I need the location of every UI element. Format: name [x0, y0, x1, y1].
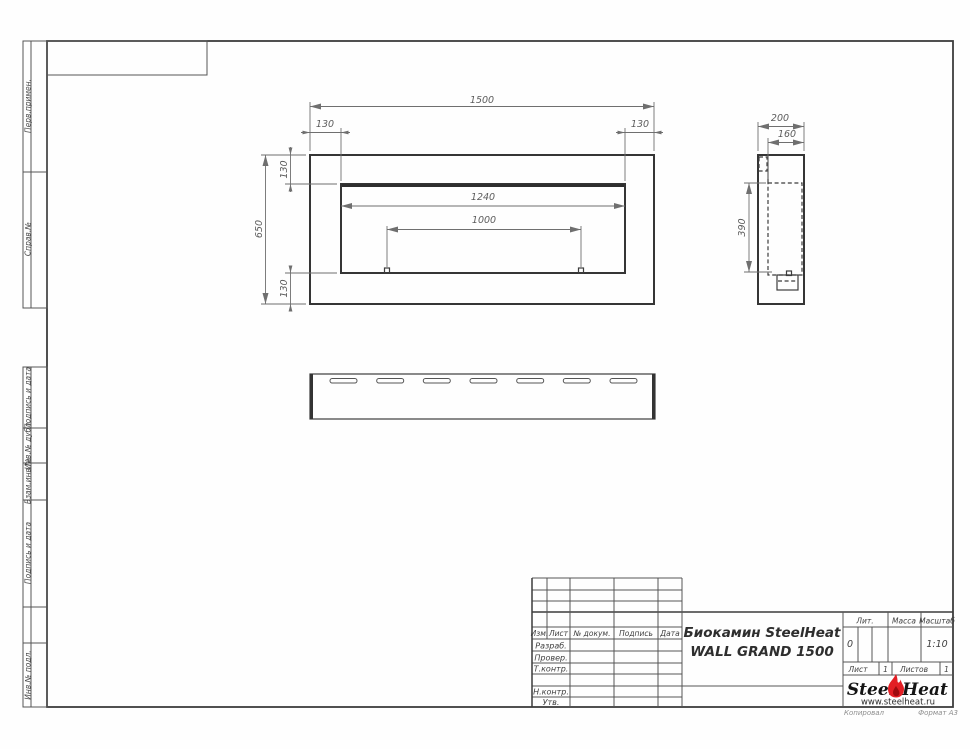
tb-scale-value: 1:10	[926, 639, 947, 650]
side-view-dimensions: 200 160 390	[737, 113, 804, 272]
logo-url: www.steelheat.ru	[861, 698, 935, 708]
drawing-sheet: Перв.примен. Справ.№ Подпись и дата Инв.…	[0, 0, 970, 749]
vent-slot	[563, 379, 590, 384]
front-view-dimensions: 1500 130 130 650 130 130 1240	[254, 95, 663, 312]
tb-col-list: Лист	[548, 629, 569, 638]
tb-col-dokum: № докум.	[573, 629, 611, 638]
margin-label-podpis-data-2: Подпись и дата	[24, 522, 33, 585]
tb-row-utv: Утв.	[543, 698, 560, 707]
vent-slot	[610, 379, 637, 384]
footer-format: Формат А3	[918, 709, 958, 717]
document-title-line1: Биокамин SteelHeat	[684, 625, 841, 641]
dim-front-left: 130	[316, 119, 334, 130]
dim-side-inner: 160	[778, 129, 796, 140]
side-view	[758, 155, 804, 304]
vent-slot	[470, 379, 497, 384]
vent-slot	[517, 379, 544, 384]
mount-bracket	[759, 157, 767, 171]
title-block: Изм. Лист № докум. Подпись Дата Разраб. …	[531, 578, 958, 717]
tb-lit-label: Лит.	[855, 617, 873, 626]
dim-front-width: 1500	[470, 95, 494, 106]
vent-slot	[423, 379, 450, 384]
technical-drawing-svg: Перв.примен. Справ.№ Подпись и дата Инв.…	[0, 0, 970, 749]
tb-row-nkontr: Н.контр.	[533, 688, 569, 697]
tb-sheet-value: 1	[883, 665, 888, 674]
left-margin-top-blocks: Перв.примен. Справ.№	[23, 41, 47, 308]
tb-sheets-value: 1	[944, 665, 949, 674]
dim-side-opening-height: 390	[737, 218, 748, 236]
top-left-designation-box	[47, 41, 207, 75]
flame-icon	[888, 674, 904, 698]
tb-col-podpis: Подпись	[619, 629, 653, 638]
bottom-view	[310, 374, 655, 419]
vent-slot	[330, 379, 357, 384]
tb-lit-value: 0	[847, 639, 853, 650]
dim-front-bottom: 130	[279, 279, 290, 297]
tb-col-data: Дата	[659, 629, 680, 638]
dim-front-top: 130	[279, 160, 290, 178]
margin-label-sprav-no: Справ.№	[24, 222, 33, 256]
footer-kopiroval: Копировал	[844, 709, 885, 717]
steelheat-logo: Steel Heat www.steelheat.ru	[847, 674, 948, 708]
tb-sheets-label: Листов	[899, 665, 928, 674]
margin-label-podpis-data-1: Подпись и дата	[24, 367, 33, 430]
margin-label-perv-primen: Перв.примен.	[24, 79, 33, 133]
vent-slot	[377, 379, 404, 384]
dim-opening-width: 1240	[471, 192, 495, 203]
tb-scale-label: Масштаб	[919, 617, 955, 626]
tb-row-prover: Провер.	[534, 654, 567, 663]
margin-label-inv-podl: Инв.№ подл.	[24, 650, 33, 699]
tb-row-razrab: Разраб.	[535, 642, 566, 651]
left-margin-bottom-blocks: Подпись и дата Инв.№ дубл. Взам.инв.№ По…	[23, 367, 47, 707]
dim-front-right: 130	[631, 119, 649, 130]
document-title-line2: WALL GRAND 1500	[690, 644, 833, 660]
tb-sheet-label: Лист	[847, 665, 868, 674]
dim-front-height: 650	[254, 220, 265, 238]
tb-row-tkontr: Т.контр.	[534, 665, 569, 674]
dim-side-depth: 200	[771, 113, 789, 124]
margin-label-vzam-inv: Взам.инв.№	[24, 458, 33, 504]
dim-burner-width: 1000	[472, 215, 496, 226]
tb-mass-label: Масса	[892, 617, 916, 626]
tb-col-izm: Изм.	[531, 629, 549, 638]
burner-box	[777, 275, 798, 290]
